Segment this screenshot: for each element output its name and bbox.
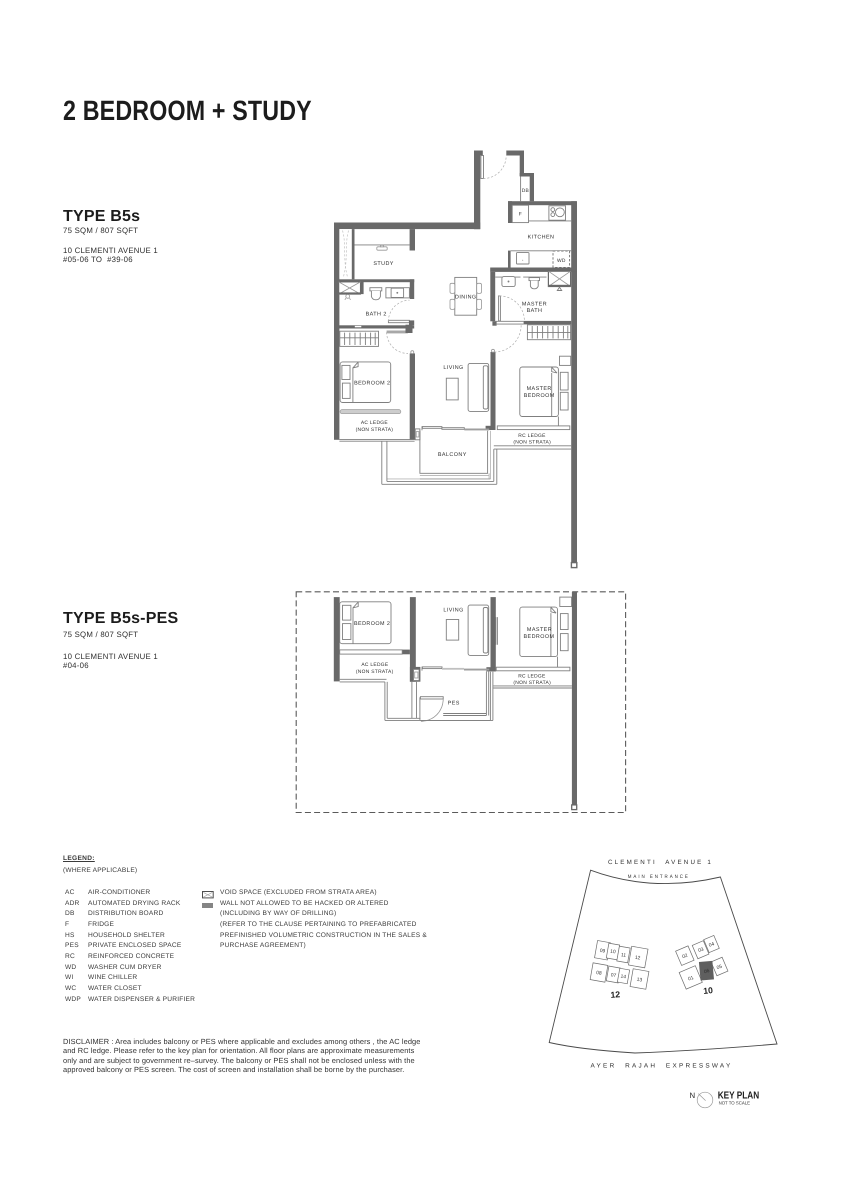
svg-text:BATH: BATH — [527, 308, 543, 314]
svg-text:13: 13 — [636, 977, 642, 984]
svg-text:RC LEDGE: RC LEDGE — [518, 673, 546, 679]
svg-text:LIVING: LIVING — [443, 607, 463, 613]
svg-text:09: 09 — [599, 948, 605, 955]
svg-text:NOT TO SCALE: NOT TO SCALE — [719, 1101, 750, 1106]
svg-text:BEDROOM: BEDROOM — [524, 393, 555, 399]
svg-text:(NON STRATA): (NON STRATA) — [356, 427, 394, 433]
svg-text:MAIN ENTRANCE: MAIN ENTRANCE — [628, 874, 690, 880]
svg-text:F: F — [519, 212, 522, 218]
svg-text:10: 10 — [703, 985, 714, 996]
svg-text:(NON STRATA): (NON STRATA) — [513, 680, 551, 686]
svg-text:WD: WD — [557, 258, 566, 264]
svg-text:BATH 2: BATH 2 — [366, 312, 387, 318]
svg-text:(NON STRATA): (NON STRATA) — [513, 439, 551, 445]
svg-text:BEDROOM 2: BEDROOM 2 — [354, 621, 390, 627]
svg-text:(NON STRATA): (NON STRATA) — [356, 669, 394, 675]
svg-text:AC LEDGE: AC LEDGE — [361, 662, 389, 668]
svg-text:KITCHEN: KITCHEN — [528, 234, 555, 240]
svg-text:CLEMENTI AVENUE 1: CLEMENTI AVENUE 1 — [608, 859, 713, 866]
svg-text:08: 08 — [596, 970, 602, 977]
svg-text:RC LEDGE: RC LEDGE — [518, 433, 546, 439]
svg-text:DINING: DINING — [455, 295, 477, 301]
svg-text:STUDY: STUDY — [373, 261, 394, 267]
svg-text:BEDROOM 2: BEDROOM 2 — [354, 380, 390, 386]
svg-text:MASTER: MASTER — [522, 301, 547, 307]
svg-text:LIVING: LIVING — [443, 365, 463, 371]
svg-text:12: 12 — [634, 955, 640, 962]
svg-text:MASTER: MASTER — [527, 627, 552, 633]
svg-text:BEDROOM: BEDROOM — [523, 634, 554, 640]
svg-text:14: 14 — [620, 974, 626, 981]
svg-text:AC LEDGE: AC LEDGE — [361, 420, 389, 426]
svg-text:PES: PES — [448, 701, 460, 707]
svg-text:MASTER: MASTER — [527, 386, 552, 392]
svg-text:N: N — [690, 1091, 696, 1100]
svg-text:07: 07 — [610, 972, 616, 979]
svg-text:BALCONY: BALCONY — [438, 452, 467, 458]
svg-text:12: 12 — [610, 989, 620, 1000]
svg-text:DB: DB — [522, 188, 529, 194]
svg-text:10: 10 — [610, 949, 616, 956]
svg-text:AYER RAJAH EXPRESSWAY: AYER RAJAH EXPRESSWAY — [591, 1062, 733, 1069]
